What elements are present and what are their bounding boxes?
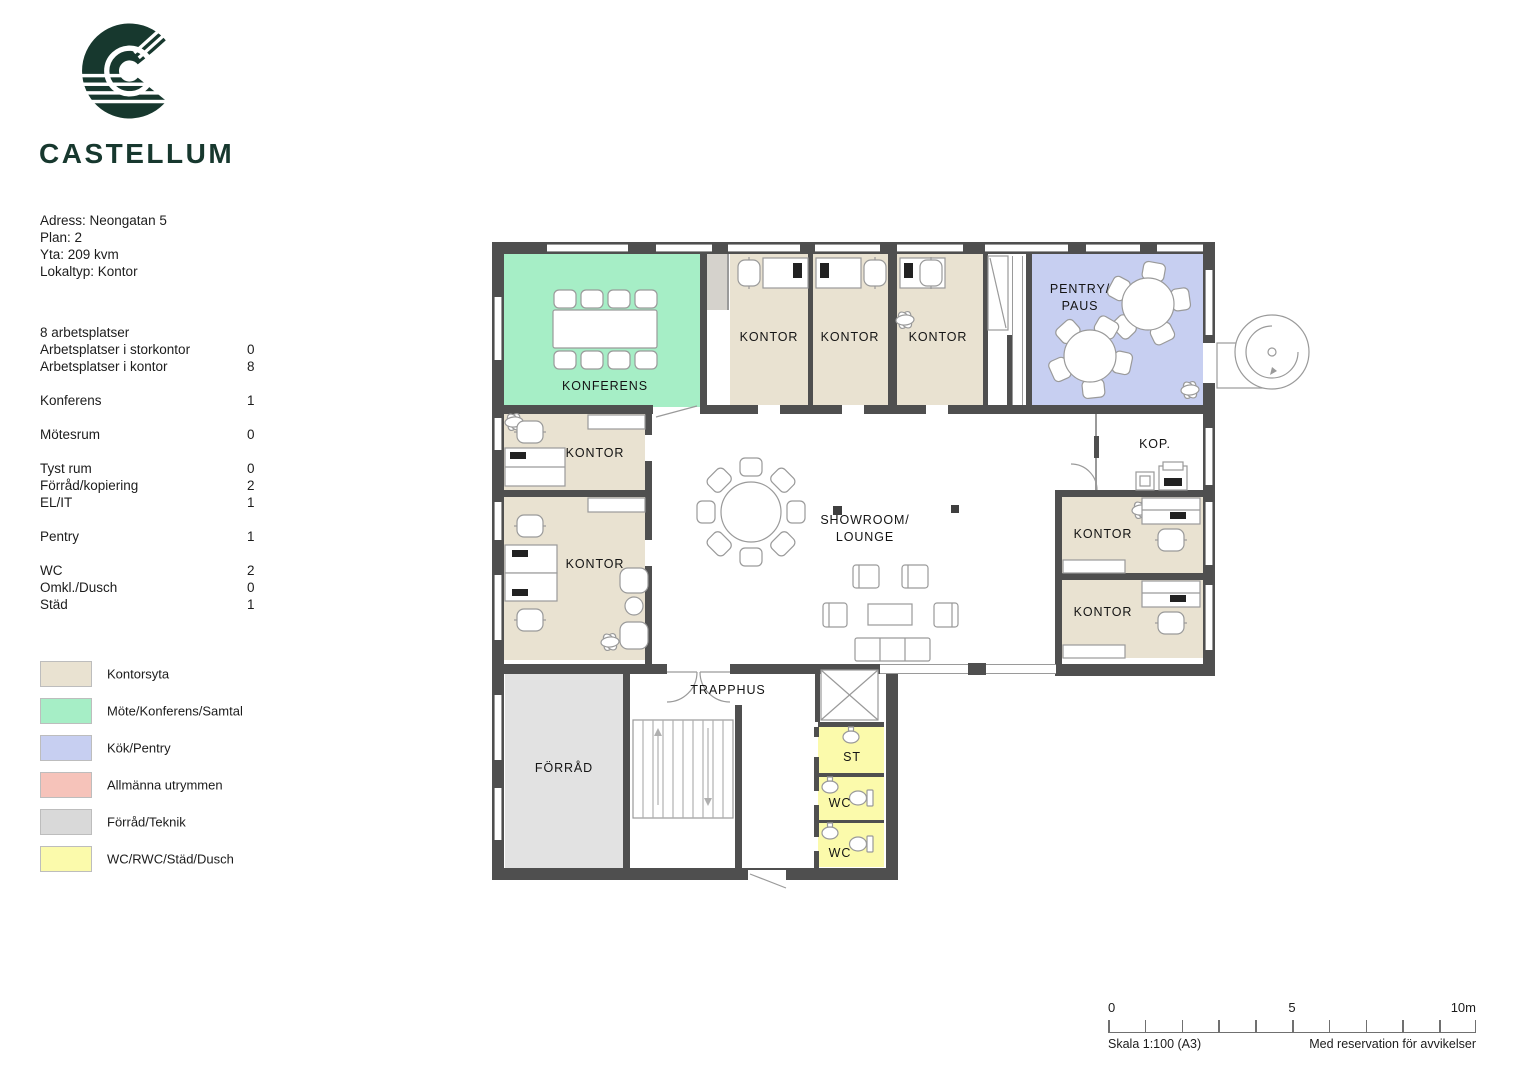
label-konferens: KONFERENS	[562, 379, 648, 393]
label-showroom: SHOWROOM/ LOUNGE	[820, 512, 909, 546]
wall	[1026, 254, 1032, 405]
info-plan: Plan: 2	[40, 229, 167, 246]
stats-header: 8 arbetsplatser	[40, 324, 270, 341]
label-wc-1: WC	[829, 796, 852, 810]
wall	[735, 705, 742, 868]
wall	[1094, 436, 1099, 458]
label-kontor-4: KONTOR	[566, 446, 625, 460]
label-kontor-7: KONTOR	[1074, 605, 1133, 619]
legend-swatch-pantry	[40, 735, 92, 761]
scale-bar: 0 5 10m Skala 1:100 (A3) Med reservation…	[1108, 1000, 1476, 1058]
lounge-set	[823, 565, 958, 661]
wall	[888, 254, 897, 405]
property-info: Adress: Neongatan 5 Plan: 2 Yta: 209 kvm…	[40, 212, 167, 280]
stats-row: Tyst rum0	[40, 460, 270, 477]
wall	[814, 851, 819, 868]
wall	[968, 663, 986, 675]
room-wc-2	[818, 823, 884, 867]
door-opening	[748, 870, 786, 880]
stats-row: Omkl./Dusch0	[40, 579, 270, 596]
wall	[818, 820, 884, 823]
window	[815, 244, 880, 252]
label-kontor-1: KONTOR	[740, 330, 799, 344]
label-kontor-5: KONTOR	[566, 557, 625, 571]
window	[547, 244, 628, 252]
room-pentry	[1032, 254, 1205, 405]
label-st: ST	[843, 750, 861, 764]
legend-swatch-office	[40, 661, 92, 687]
wall-thin	[1022, 256, 1023, 405]
copier	[1136, 462, 1187, 490]
window	[494, 788, 502, 840]
wall	[700, 405, 758, 414]
door-opening	[1203, 343, 1215, 383]
castellum-logo-icon	[82, 18, 178, 124]
window	[1205, 428, 1213, 485]
wall	[818, 773, 884, 777]
stats-row: Arbetsplatser i kontor8	[40, 358, 270, 375]
window	[494, 418, 502, 450]
window	[728, 244, 800, 252]
stats-row: WC2	[40, 562, 270, 579]
wall	[983, 254, 988, 405]
info-address: Adress: Neongatan 5	[40, 212, 167, 229]
wall	[492, 868, 898, 880]
info-area: Yta: 209 kvm	[40, 246, 167, 263]
legend-swatch-meeting	[40, 698, 92, 724]
wall	[814, 805, 819, 837]
legend-swatch-wc	[40, 846, 92, 872]
wall	[492, 405, 653, 414]
door-opening	[645, 435, 652, 461]
window	[1157, 244, 1203, 252]
wall	[1055, 573, 1215, 580]
wall	[815, 668, 820, 722]
legend-swatch-common	[40, 772, 92, 798]
label-kontor-3: KONTOR	[909, 330, 968, 344]
label-forrad: FÖRRÅD	[535, 761, 593, 775]
label-trapphus: TRAPPHUS	[690, 683, 765, 697]
info-type: Lokaltyp: Kontor	[40, 263, 167, 280]
window	[985, 244, 1068, 252]
window	[1205, 585, 1213, 650]
window	[656, 244, 712, 252]
scale-ruler	[1108, 1018, 1476, 1033]
brand-wordmark: CASTELLUM	[39, 138, 234, 170]
window	[494, 575, 502, 640]
scale-text: Skala 1:100 (A3)	[1108, 1037, 1201, 1051]
window	[1086, 244, 1140, 252]
stats-row: Arbetsplatser i storkontor0	[40, 341, 270, 358]
stats-row: Förråd/kopiering2	[40, 477, 270, 494]
wall	[1055, 664, 1215, 676]
wall	[780, 405, 842, 414]
window	[494, 297, 502, 360]
elevator	[821, 670, 878, 720]
window	[897, 244, 963, 252]
label-wc-2: WC	[829, 846, 852, 860]
label-kontor-2: KONTOR	[821, 330, 880, 344]
stats-row: EL/IT1	[40, 494, 270, 511]
wall	[492, 664, 667, 674]
stats-row: Pentry1	[40, 528, 270, 545]
wall	[492, 490, 652, 497]
room-kontor-5	[503, 497, 645, 660]
wall	[730, 664, 880, 674]
wall	[818, 722, 884, 727]
scale-tick-5: 5	[1288, 1000, 1295, 1015]
wall	[814, 757, 819, 791]
stats-row: Mötesrum0	[40, 426, 270, 443]
wall	[808, 254, 813, 405]
stairs	[633, 720, 733, 818]
legend-swatch-storage	[40, 809, 92, 835]
window	[494, 695, 502, 760]
wall	[814, 727, 819, 737]
wall-thin	[727, 254, 729, 310]
scale-tick-10: 10m	[1451, 1000, 1476, 1015]
window	[1205, 270, 1213, 335]
room-statistics: 8 arbetsplatser Arbetsplatser i storkont…	[40, 324, 270, 613]
door-opening	[645, 540, 652, 566]
floor-plan: KONFERENS KONTOR KONTOR KONTOR PENTRY/ P…	[490, 240, 1320, 890]
label-kontor-6: KONTOR	[1074, 527, 1133, 541]
wall	[1055, 490, 1215, 497]
window	[1205, 502, 1213, 565]
wall-thin	[1012, 256, 1013, 405]
stats-row: Konferens1	[40, 392, 270, 409]
label-kop: KOP.	[1139, 437, 1171, 451]
scale-tick-0: 0	[1108, 1000, 1115, 1015]
wall	[948, 405, 1203, 414]
showroom-round-table	[697, 458, 805, 566]
wall	[886, 670, 898, 880]
disclaimer-text: Med reservation för avvikelser	[1309, 1037, 1476, 1051]
label-pentry: PENTRY/ PAUS	[1050, 281, 1110, 315]
spiral-staircase	[1217, 315, 1309, 389]
stats-row: Städ1	[40, 596, 270, 613]
window	[494, 502, 502, 540]
floor-plan-sheet: CASTELLUM Adress: Neongatan 5 Plan: 2 Yt…	[0, 0, 1527, 1080]
wall	[700, 254, 707, 405]
column	[951, 505, 959, 513]
wall	[864, 405, 926, 414]
wall	[623, 668, 630, 868]
